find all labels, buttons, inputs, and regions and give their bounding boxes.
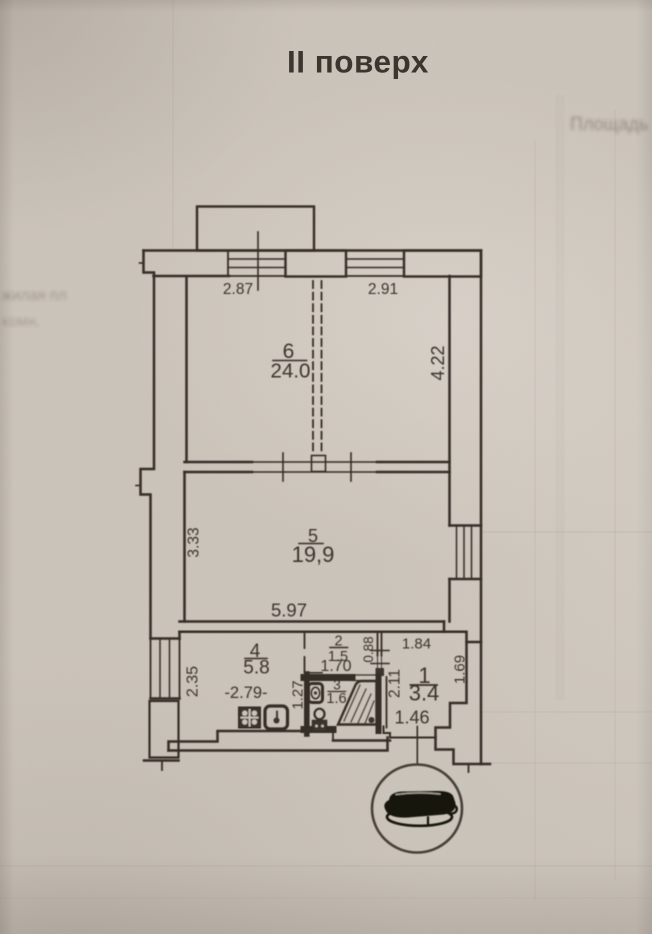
svg-text:2.87: 2.87 [223,281,253,298]
svg-text:4.22: 4.22 [428,345,448,380]
svg-text:II поверх: II поверх [287,44,429,80]
svg-text:жилая пл: жилая пл [2,287,67,304]
svg-text:0.88: 0.88 [361,636,376,662]
svg-text:5.97: 5.97 [271,600,307,621]
svg-text:5.8: 5.8 [243,658,269,679]
svg-text:1.84: 1.84 [402,636,431,653]
svg-text:2.35: 2.35 [185,666,202,697]
svg-text:19,9: 19,9 [292,542,335,567]
svg-text:1.6: 1.6 [326,691,346,707]
svg-text:2.11: 2.11 [387,669,404,698]
svg-text:3.33: 3.33 [186,527,203,557]
svg-text:2.91: 2.91 [368,281,398,298]
svg-text:1.27: 1.27 [290,680,307,709]
svg-text:комн.: комн. [2,313,40,330]
svg-text:3.4: 3.4 [409,681,440,706]
svg-text:24.0: 24.0 [271,360,311,383]
svg-text:1.46: 1.46 [394,708,429,728]
svg-text:Площадь: Площадь [570,114,648,134]
svg-text:1.70: 1.70 [320,658,351,675]
svg-text:-2.79-: -2.79- [224,684,267,702]
